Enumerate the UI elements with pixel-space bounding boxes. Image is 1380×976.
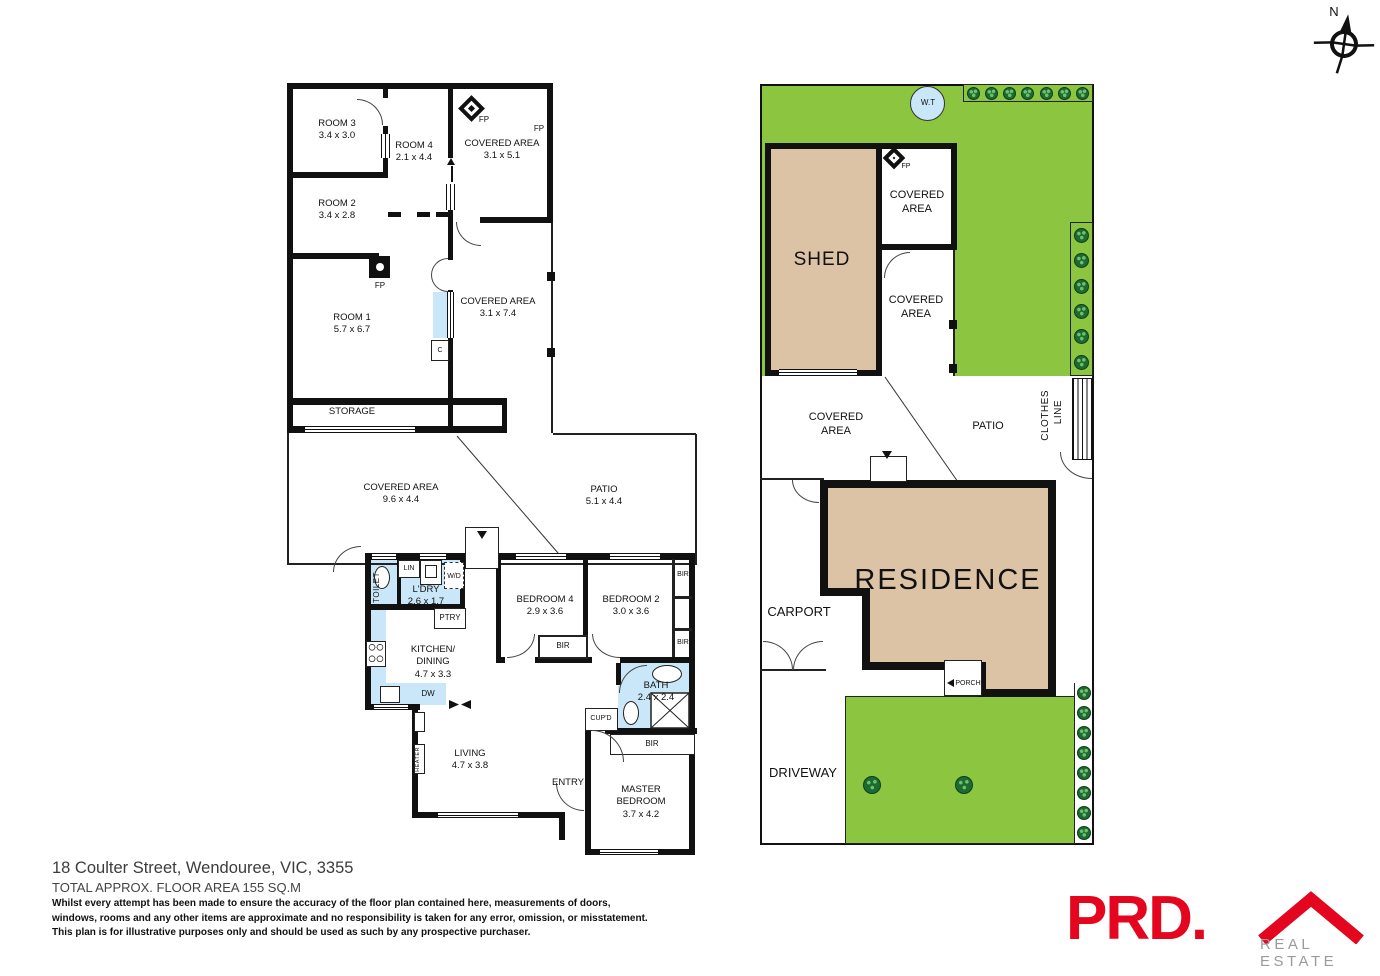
- cupboard-hall-label: CUP'D: [590, 714, 611, 723]
- stove-icon: [366, 641, 386, 667]
- fireplace-icon: [369, 256, 390, 278]
- tree-icon: [1003, 87, 1016, 100]
- living-label: LIVING 4.7 x 3.8: [452, 748, 488, 773]
- pantry-label: PTRY: [439, 613, 460, 623]
- tree-row-top: [963, 84, 1093, 102]
- kitchen-label: KITCHEN/ DINING 4.7 x 3.3: [411, 644, 455, 681]
- tree-icon: [1021, 87, 1034, 100]
- room1-label: ROOM 1 5.7 x 6.7: [333, 312, 370, 337]
- tree-column-upper: [1070, 222, 1093, 376]
- covered-area-top-label: COVERED AREA 3.1 x 5.1: [465, 138, 540, 163]
- water-tank-label: W.T: [921, 98, 935, 108]
- site-covered-upper-label: COVERED AREA: [890, 188, 944, 217]
- tree-icon: [1058, 87, 1071, 100]
- bir-right-top-label: BIR: [677, 570, 689, 579]
- shed-label: SHED: [794, 248, 851, 273]
- tree-icon: [1074, 279, 1089, 294]
- clothes-line-label-1: CLOTHES: [1040, 390, 1051, 441]
- bath-label: BATH 2.4 x 2.4: [638, 680, 674, 705]
- brand-tagline: REAL ESTATE: [1260, 936, 1380, 970]
- floor-area-text: TOTAL APPROX. FLOOR AREA 155 SQ.M: [52, 880, 301, 895]
- bir-right-mid-label: BIR: [677, 638, 689, 647]
- bedroom4-label: BEDROOM 4 2.9 x 3.6: [516, 594, 573, 619]
- tree-icon: [1077, 746, 1091, 760]
- site-fp-label: FP: [902, 162, 911, 171]
- linen-label: LIN: [404, 564, 415, 573]
- tree-icon: [1074, 228, 1089, 243]
- tree-icon: [985, 87, 998, 100]
- bath-toilet-icon: [623, 701, 639, 725]
- tree-icon: [1074, 329, 1089, 344]
- carport-label: CARPORT: [767, 604, 830, 621]
- tree-icon: [863, 776, 881, 794]
- bedroom2-label: BEDROOM 2 3.0 x 3.6: [602, 594, 659, 619]
- tree-icon: [1077, 766, 1091, 780]
- driveway-label: DRIVEWAY: [769, 765, 837, 782]
- bir-master-label: BIR: [645, 739, 658, 749]
- fp-room1-label: FP: [375, 281, 385, 291]
- fp-diamond-label: FP: [479, 115, 489, 125]
- deck-covered-area-label: COVERED AREA 9.6 x 4.4: [364, 482, 439, 507]
- tree-icon: [1077, 826, 1091, 840]
- tree-icon: [1076, 87, 1089, 100]
- tree-column-lower: [1074, 683, 1093, 843]
- porch-label: PORCH: [955, 679, 980, 688]
- clothes-line-label-2: LINE: [1053, 400, 1064, 424]
- meter-box-icon: [414, 712, 425, 732]
- brand-logo-text: PRD.: [1066, 888, 1206, 950]
- fp-corner-label: FP: [534, 124, 544, 134]
- site-covered-mid-label: COVERED AREA: [809, 410, 863, 439]
- compass-icon: [1308, 14, 1380, 78]
- heater-label: HEATER: [415, 747, 421, 772]
- room4-label: ROOM 4 2.1 x 4.4: [395, 140, 432, 165]
- property-address: 18 Coulter Street, Wendouree, VIC, 3355: [52, 859, 353, 878]
- bir-hall-label: BIR: [556, 641, 569, 651]
- tree-icon: [955, 776, 973, 794]
- toilet-label: TOILET: [372, 572, 381, 603]
- residence-label: RESIDENCE: [854, 562, 1041, 600]
- tree-icon: [1077, 686, 1091, 700]
- tree-icon: [1040, 87, 1053, 100]
- master-bedroom-label: MASTER BEDROOM 3.7 x 4.2: [616, 784, 665, 821]
- tree-icon: [1077, 806, 1091, 820]
- covered-area-side-label: COVERED AREA 3.1 x 7.4: [461, 296, 536, 321]
- tree-icon: [1074, 253, 1089, 268]
- tree-icon: [1074, 304, 1089, 319]
- laundry-label: L'DRY 2.6 x 1.7: [408, 584, 444, 609]
- tree-icon: [1077, 726, 1091, 740]
- cupboard-label: C: [437, 346, 442, 355]
- dishwasher-label: DW: [421, 689, 434, 699]
- site-patio-label: PATIO: [972, 419, 1003, 433]
- site-covered-lower-label: COVERED AREA: [889, 293, 943, 322]
- tree-icon: [1074, 355, 1089, 370]
- tree-icon: [967, 87, 980, 100]
- tree-icon: [1077, 786, 1091, 800]
- washer-dryer-label: W/D: [447, 572, 461, 581]
- room2-label: ROOM 2 3.4 x 2.8: [318, 198, 355, 223]
- deck-patio-label: PATIO 5.1 x 4.4: [586, 484, 622, 509]
- room3-label: ROOM 3 3.4 x 3.0: [318, 118, 355, 143]
- entry-label: ENTRY: [552, 777, 584, 789]
- kitchen-sink-icon: [380, 686, 400, 703]
- tree-icon: [1077, 706, 1091, 720]
- clothes-line-icon: [1072, 378, 1093, 460]
- storage-label: STORAGE: [329, 406, 375, 418]
- disclaimer-text: Whilst every attempt has been made to en…: [52, 897, 648, 941]
- floor-plan-page: N C: [0, 0, 1380, 976]
